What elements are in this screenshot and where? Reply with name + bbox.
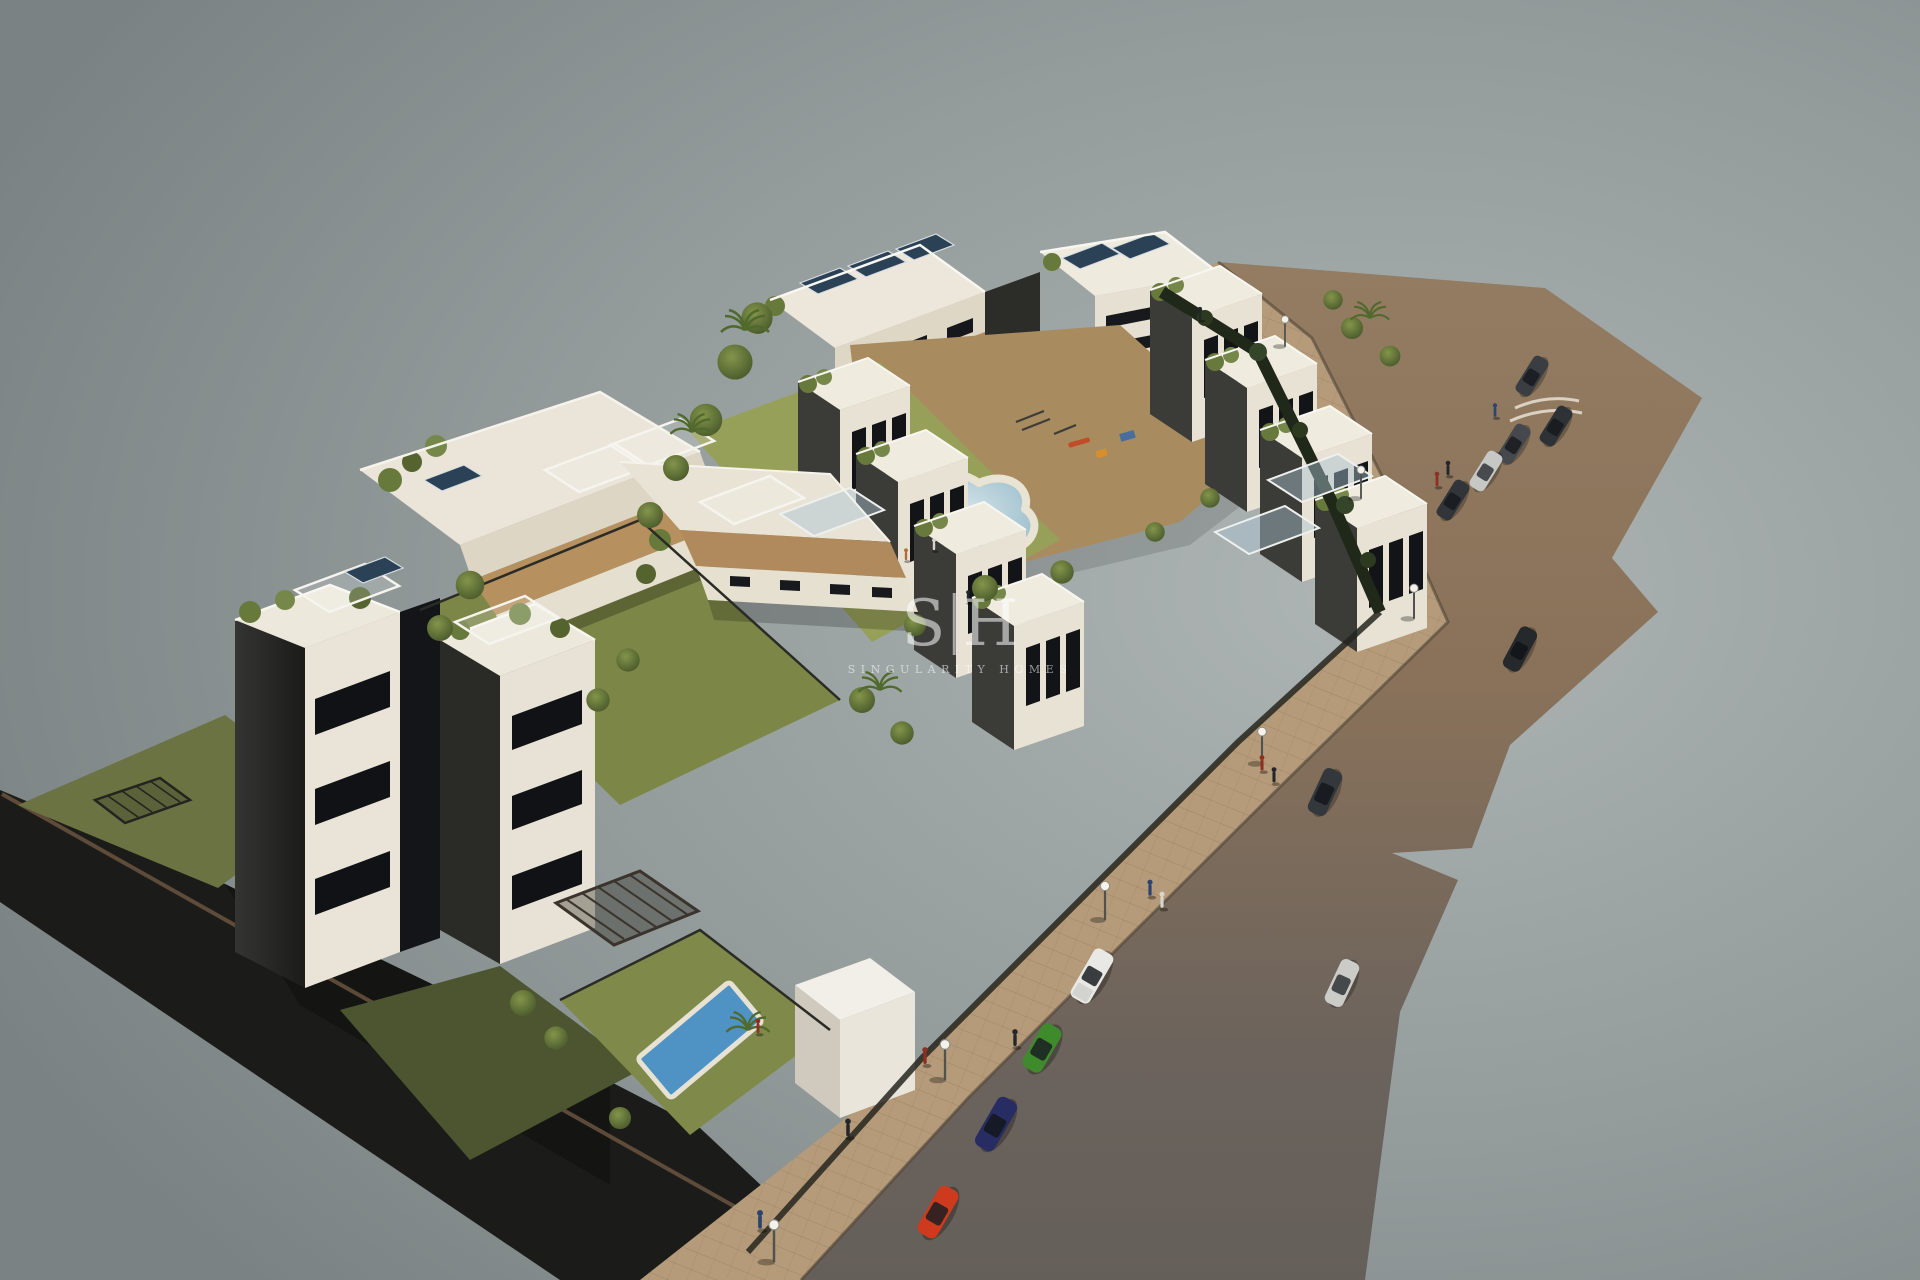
render-canvas: S H SINGULARITY HOMES [0,0,1920,1280]
scene-svg [0,0,1920,1280]
stairwell-gap [400,598,440,952]
garden-shed [795,958,915,1118]
west-building-cluster [235,557,595,988]
left-apartment-tower-a [235,585,400,988]
